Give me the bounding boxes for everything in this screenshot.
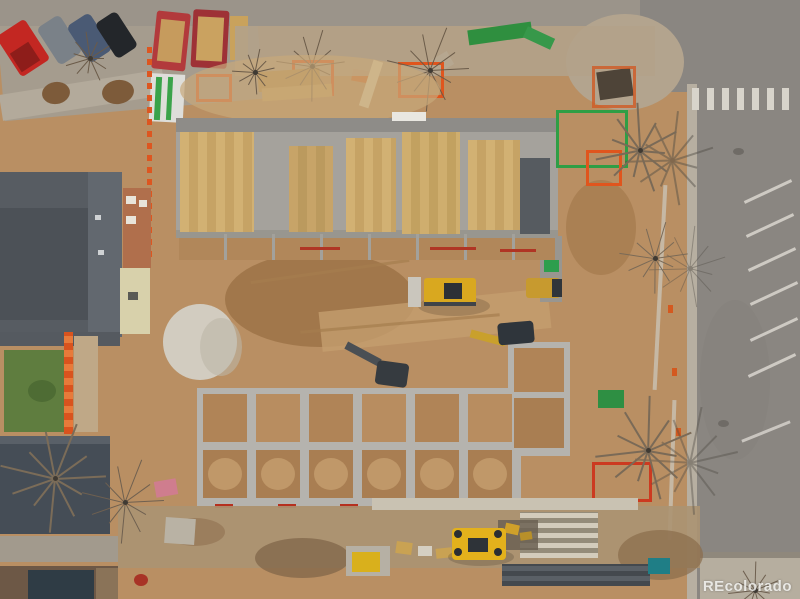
cell-mound-5 (420, 458, 454, 490)
watermark-recolorado: REcolorado (703, 578, 792, 595)
brick-window-3 (139, 200, 147, 207)
sand-pile-shade (200, 318, 242, 376)
brick-window-2 (126, 216, 136, 224)
tan-wall-window (128, 292, 138, 300)
trailer-yellow-box (352, 552, 380, 572)
branch (647, 396, 650, 451)
trunk (428, 68, 433, 73)
cell-top-5 (415, 394, 459, 442)
bottomleft-roof-tan (96, 568, 118, 599)
plywood-panel-2 (289, 146, 333, 232)
branch (49, 479, 56, 532)
white-banner (392, 112, 426, 121)
crosswalk-stripe-6 (767, 88, 774, 110)
main-roof-ridge (88, 172, 122, 337)
roller-engine (468, 538, 488, 552)
trunk (653, 256, 658, 261)
crosswalk-stripe-4 (737, 88, 744, 110)
materials-sack (418, 546, 432, 556)
materials-box-1 (395, 541, 413, 555)
dumpster-1-contents (157, 19, 185, 63)
cell-mound-1 (208, 458, 242, 490)
crosswalk-stripe-5 (752, 88, 759, 110)
stair-trench-dark (520, 158, 550, 234)
pipe-rack-dark (502, 564, 650, 586)
bottom-dark-patch-1 (255, 538, 350, 578)
tree-right-low (590, 392, 706, 508)
tree-bottomleft-2 (77, 454, 173, 550)
manhole-1 (733, 148, 744, 155)
branch (430, 68, 469, 71)
cell-mound-6 (473, 458, 507, 490)
cell-mound-4 (367, 458, 401, 490)
tree-right-top (590, 100, 690, 200)
framing-north-wall (176, 118, 558, 132)
bay-dirt-strip (179, 238, 555, 260)
crosswalk-stripe-7 (782, 88, 789, 110)
ext-cell-top (514, 348, 564, 392)
roller-wheel-4 (494, 548, 502, 556)
cell-mound-3 (314, 458, 348, 490)
main-roof-shade (0, 208, 90, 320)
rebar-red-2 (430, 247, 476, 250)
excavator-center-body (374, 360, 409, 388)
machinery-yellow-2 (520, 531, 533, 541)
crosswalk-stripe-3 (722, 88, 729, 110)
tree-right-mid (615, 218, 695, 298)
trunk (123, 500, 128, 505)
aerial-construction-photo: REcolorado (0, 0, 800, 599)
cell-top-2 (256, 394, 300, 442)
plywood-panel-5 (468, 140, 520, 230)
ext-cell-bot (514, 398, 564, 448)
branch (654, 259, 655, 294)
plywood-panel-1 (180, 132, 254, 232)
plywood-panel-4 (402, 132, 460, 234)
trunk (638, 148, 643, 153)
trunk (253, 70, 258, 75)
cell-top-3 (309, 394, 353, 442)
bay-divider-7 (512, 234, 515, 260)
lawn-shrub (28, 380, 56, 402)
porch-roof (0, 332, 120, 346)
dozer-blade (408, 277, 421, 307)
tree-topleft-small-2 (230, 47, 280, 97)
rebar-red-1 (300, 247, 340, 250)
roof-vent-2 (98, 250, 104, 255)
bay-divider-2 (272, 234, 275, 260)
dozer-track (424, 302, 476, 306)
roller-wheel-3 (494, 530, 502, 538)
branch (636, 103, 640, 151)
crosswalk-stripe-1 (692, 88, 699, 110)
trunk (88, 56, 93, 61)
dozer-cab (444, 283, 462, 299)
plywood-panel-3 (346, 138, 396, 232)
bay-divider-1 (224, 234, 227, 260)
teal-container (648, 558, 670, 574)
cone-right-2 (672, 368, 677, 376)
red-wheel-item (134, 574, 148, 586)
compactor-front (552, 279, 562, 297)
brick-window-1 (126, 196, 136, 204)
tree-topleft-small-1 (62, 30, 118, 86)
roller-wheel-1 (454, 530, 462, 538)
tan-wall (120, 268, 150, 334)
cell-mound-2 (261, 458, 295, 490)
rebar-red-3 (500, 249, 536, 252)
cell-top-1 (203, 394, 247, 442)
roller-wheel-2 (454, 548, 462, 556)
branch (120, 503, 125, 544)
dumpster-2-contents (196, 16, 224, 61)
cell-top-6 (468, 394, 512, 442)
bay-divider-5 (416, 234, 419, 260)
crosswalk-stripe-2 (707, 88, 714, 110)
green-bin (544, 260, 559, 272)
trunk (646, 448, 651, 453)
excavator-east-body (497, 320, 535, 345)
trunk (53, 476, 58, 481)
bottomleft-dark-roof (28, 570, 94, 599)
cell-top-4 (362, 394, 406, 442)
bay-divider-4 (368, 234, 371, 260)
roof-vent-1 (95, 215, 101, 220)
branch (125, 500, 164, 503)
